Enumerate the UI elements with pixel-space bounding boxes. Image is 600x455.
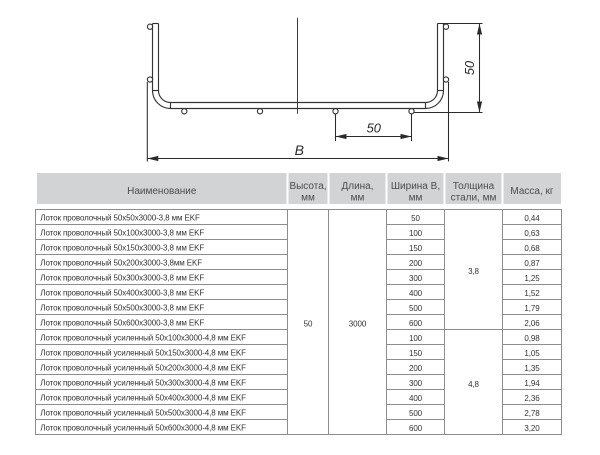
svg-text:1,94: 1,94 <box>524 379 540 388</box>
svg-text:Лоток проволочный усиленный 50: Лоток проволочный усиленный 50х400х3000-… <box>40 394 246 403</box>
svg-text:Лоток проволочный 50х50х3000-3: Лоток проволочный 50х50х3000-3,8 мм EKF <box>40 214 200 223</box>
svg-text:3000: 3000 <box>349 320 367 329</box>
svg-text:100: 100 <box>409 334 423 343</box>
svg-text:0,68: 0,68 <box>524 244 540 253</box>
svg-text:Лоток проволочный 50х500х3000-: Лоток проволочный 50х500х3000-3,8 мм EKF <box>40 304 204 313</box>
svg-text:3,20: 3,20 <box>524 424 540 433</box>
svg-text:2,36: 2,36 <box>524 394 540 403</box>
svg-text:1,25: 1,25 <box>524 274 540 283</box>
svg-text:200: 200 <box>409 259 423 268</box>
svg-text:2,78: 2,78 <box>524 409 540 418</box>
svg-text:1,35: 1,35 <box>524 364 540 373</box>
svg-text:200: 200 <box>409 364 423 373</box>
svg-text:мм: мм <box>301 193 315 204</box>
svg-text:Ширина В,: Ширина В, <box>391 181 440 192</box>
svg-text:50: 50 <box>462 60 477 75</box>
svg-text:0,63: 0,63 <box>524 229 540 238</box>
svg-text:стали, мм: стали, мм <box>451 193 497 204</box>
svg-text:Длина,: Длина, <box>341 181 373 192</box>
svg-text:1,05: 1,05 <box>524 349 540 358</box>
svg-text:Лоток проволочный усиленный 50: Лоток проволочный усиленный 50х300х3000-… <box>40 379 246 388</box>
svg-text:Высота,: Высота, <box>289 181 326 192</box>
svg-text:Лоток проволочный 50х100х3000-: Лоток проволочный 50х100х3000-3,8 мм EKF <box>40 229 204 238</box>
svg-text:Лоток проволочный 50х150х3000-: Лоток проволочный 50х150х3000-3,8 мм EKF <box>40 244 204 253</box>
svg-text:Толщина: Толщина <box>453 181 495 192</box>
svg-text:мм: мм <box>351 193 365 204</box>
svg-text:400: 400 <box>409 289 423 298</box>
svg-text:100: 100 <box>409 229 423 238</box>
svg-text:600: 600 <box>409 319 423 328</box>
svg-text:1,79: 1,79 <box>524 304 540 313</box>
svg-text:Лоток проволочный усиленный 50: Лоток проволочный усиленный 50х150х3000-… <box>40 349 246 358</box>
svg-text:Лоток проволочный усиленный 50: Лоток проволочный усиленный 50х200х3000-… <box>40 364 246 373</box>
svg-text:150: 150 <box>409 244 423 253</box>
svg-text:400: 400 <box>409 394 423 403</box>
svg-text:50: 50 <box>411 214 420 223</box>
svg-text:0,44: 0,44 <box>524 214 540 223</box>
svg-text:Лоток проволочный 50х400х3000-: Лоток проволочный 50х400х3000-3,8 мм EKF <box>40 289 204 298</box>
svg-text:Лоток проволочный 50х200х3000-: Лоток проволочный 50х200х3000-3,8мм EKF <box>40 259 202 268</box>
svg-text:50: 50 <box>367 120 382 135</box>
svg-text:500: 500 <box>409 409 423 418</box>
svg-text:500: 500 <box>409 304 423 313</box>
svg-text:1,52: 1,52 <box>524 289 540 298</box>
svg-text:мм: мм <box>409 193 423 204</box>
svg-text:3,8: 3,8 <box>468 267 479 276</box>
svg-text:Лоток проволочный усиленный 50: Лоток проволочный усиленный 50х600х3000-… <box>40 424 246 433</box>
svg-text:600: 600 <box>409 424 423 433</box>
svg-text:Лоток проволочный 50х300х3000-: Лоток проволочный 50х300х3000-3,8 мм EKF <box>40 274 204 283</box>
svg-text:50: 50 <box>304 320 313 329</box>
svg-text:300: 300 <box>409 274 423 283</box>
svg-text:Лоток проволочный усиленный 50: Лоток проволочный усиленный 50х100х3000-… <box>40 334 246 343</box>
svg-text:4,8: 4,8 <box>468 380 479 389</box>
svg-text:0,87: 0,87 <box>524 259 540 268</box>
svg-text:150: 150 <box>409 349 423 358</box>
svg-text:Лоток проволочный усиленный 50: Лоток проволочный усиленный 50х500х3000-… <box>40 409 246 418</box>
svg-text:Наименование: Наименование <box>127 186 197 197</box>
svg-text:300: 300 <box>409 379 423 388</box>
svg-text:0,98: 0,98 <box>524 334 540 343</box>
svg-text:Лоток проволочный 50х600х3000-: Лоток проволочный 50х600х3000-3,8 мм EKF <box>40 319 204 328</box>
svg-text:2,06: 2,06 <box>524 319 540 328</box>
svg-text:B: B <box>295 142 304 158</box>
svg-text:Масса, кг: Масса, кг <box>510 186 553 197</box>
